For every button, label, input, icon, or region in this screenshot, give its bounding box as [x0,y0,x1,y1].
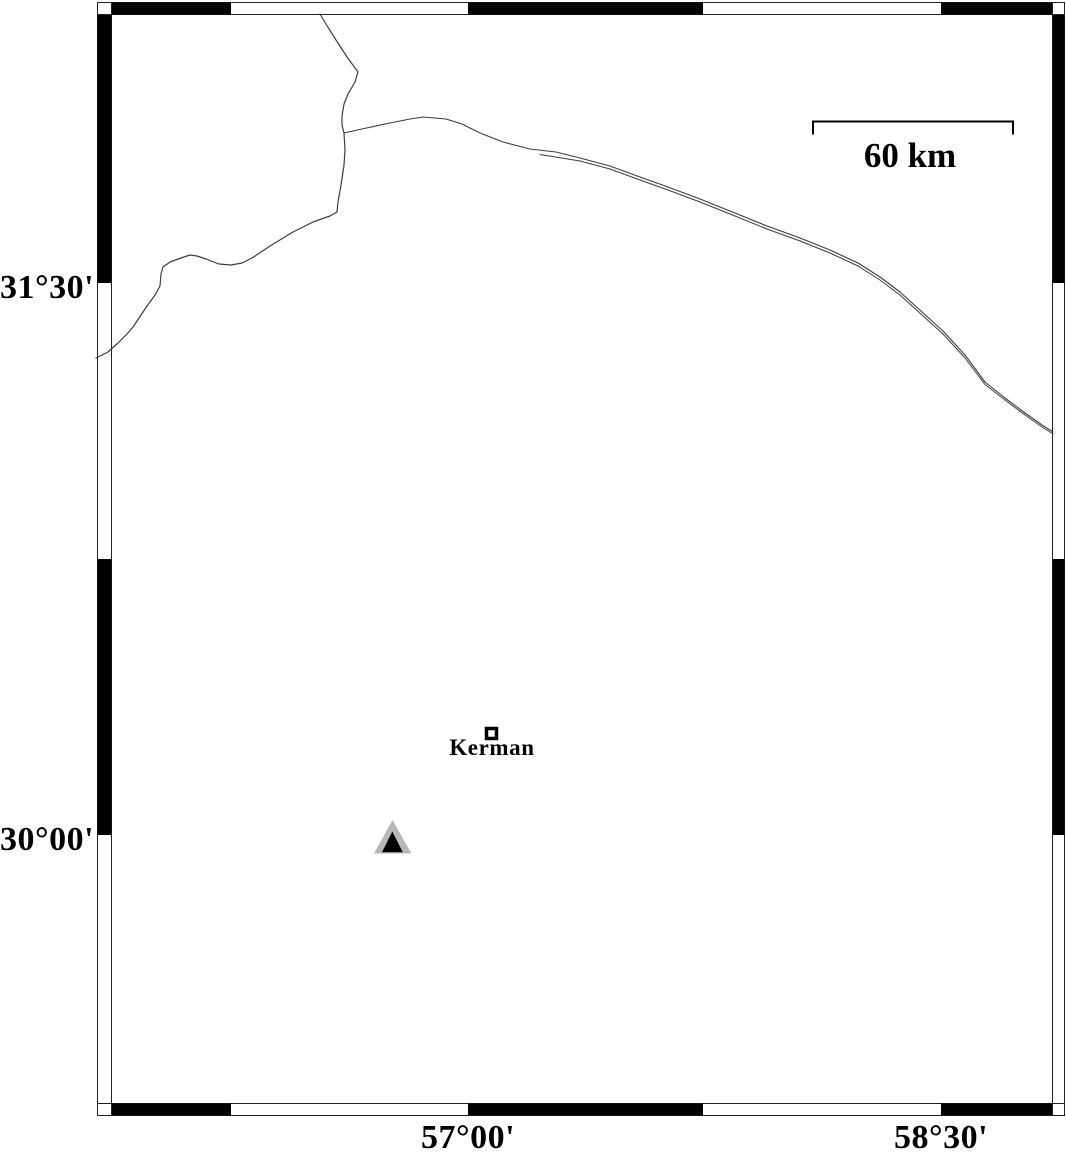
frame-left-bar [98,15,112,836]
road-lines [96,14,1053,434]
frame-top-bar [112,3,1053,15]
road-north-branch [320,14,358,133]
scale-bar-bracket [813,122,1013,135]
station-marker [374,820,412,854]
frame-inner-line [112,15,1053,1104]
lon-tick-label-58-30: 58°30' [791,1120,1066,1154]
lat-tick-label-31-30: 31°30' [0,270,90,306]
road-east-line-2 [540,155,1053,435]
scale-bar-label: 60 km [760,138,1060,175]
frame-bottom-bar [112,1104,1053,1116]
lon-tick-label-57-00: 57°00' [318,1120,618,1154]
city-label-kerman: Kerman [342,736,642,760]
map-figure: 31°30' 30°00' 57°00' 58°30' 60 km Kerman [0,0,1066,1154]
road-southwest-branch [96,133,345,358]
lat-tick-label-30-00: 30°00' [0,822,90,858]
